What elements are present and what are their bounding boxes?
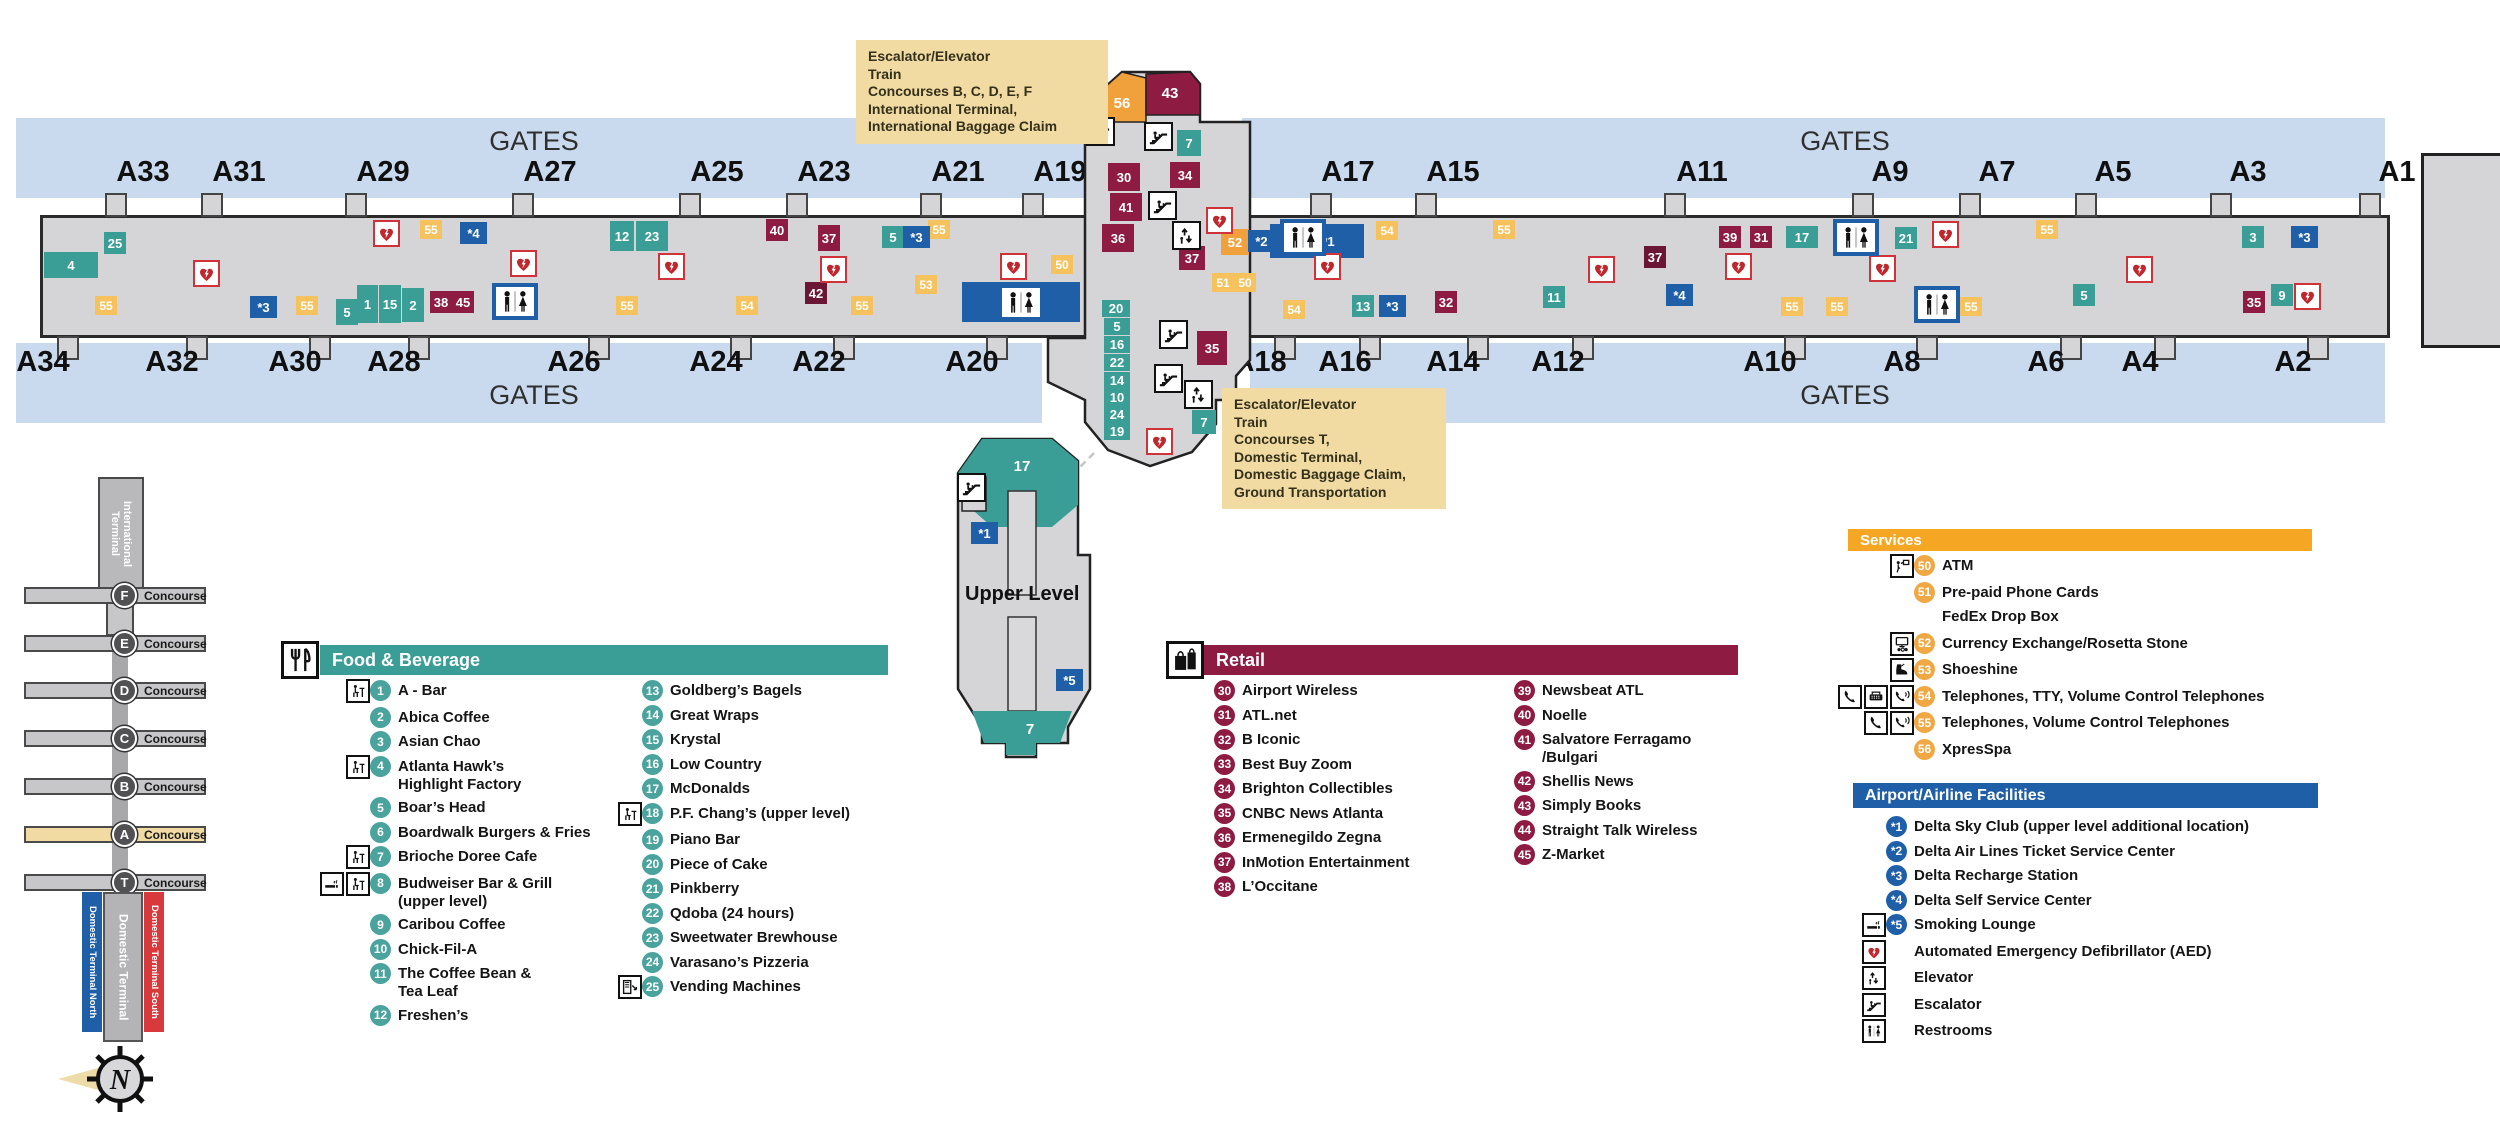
legend-badge: 11 (370, 963, 391, 984)
legend-item: 3Asian Chao (312, 733, 591, 752)
legend-label: Salvatore Ferragamo /Bulgari (1542, 731, 1691, 767)
legend-label: Smoking Lounge (1914, 916, 2036, 934)
map-marker-38: 38 (430, 291, 452, 313)
escalator-icon (1144, 122, 1173, 151)
domestic-label-south: Domestic Terminal South (144, 892, 164, 1032)
legend-label: Automated Emergency Defibrillator (AED) (1914, 943, 2212, 961)
legend-label: Asian Chao (398, 733, 481, 751)
jetway-stub (1959, 193, 1981, 217)
map-marker-star3: *3 (903, 226, 930, 248)
legend-badge: 38 (1214, 876, 1235, 897)
legend-badge-spacer (1914, 608, 1935, 629)
legend-item: 19Piano Bar (596, 831, 850, 850)
map-marker-15: 15 (379, 285, 401, 323)
legend-item-icons (1838, 714, 1914, 735)
legend-label: Brioche Doree Cafe (398, 848, 537, 866)
legend-badge: 17 (642, 778, 663, 799)
legend-badge: 33 (1214, 754, 1235, 775)
legend-badge: *2 (1886, 841, 1907, 862)
legend-label: A - Bar (398, 682, 447, 700)
legend-item: *3Delta Recharge Station (1856, 867, 2249, 886)
retail-title: Retail (1216, 650, 1265, 671)
legend-item: 50ATM (1838, 557, 2265, 578)
legend-label: Freshen’s (398, 1007, 468, 1025)
tty-icon (1864, 685, 1888, 709)
legend-badge: 53 (1914, 659, 1935, 680)
legend-item-icons (1856, 916, 1886, 937)
map-marker-7: 7 (1192, 410, 1216, 434)
map-marker-22: 22 (1104, 354, 1130, 371)
phone-icon (1838, 685, 1862, 709)
legend-badge: 43 (1514, 795, 1535, 816)
right-end-building (2421, 153, 2500, 348)
legend-item: 21Pinkberry (596, 880, 850, 899)
jetway-stub (1415, 193, 1437, 217)
aed-icon (1932, 221, 1959, 248)
map-marker-5: 5 (1104, 318, 1130, 335)
map-marker-7: 7 (1177, 130, 1201, 156)
gate-label-a30: A30 (268, 346, 321, 379)
compass-rose: N (56, 1036, 180, 1122)
compass-north-letter: N (109, 1065, 132, 1096)
jetway-stub (1310, 193, 1332, 217)
legend-item: 52Currency Exchange/Rosetta Stone (1838, 635, 2265, 656)
legend-label: Delta Recharge Station (1914, 867, 2078, 885)
concourse-bar-label: Concourse (144, 684, 207, 698)
gate-label-a8: A8 (1883, 346, 1920, 379)
map-marker-24: 24 (1104, 406, 1130, 423)
legend-label: P.F. Chang’s (upper level) (670, 805, 850, 823)
legend-label: Telephones, Volume Control Telephones (1942, 714, 2230, 732)
legend-item: FedEx Drop Box (1838, 608, 2265, 629)
gate-label-a11: A11 (1676, 156, 1728, 189)
map-marker-19: 19 (1104, 423, 1130, 440)
gate-label-a25: A25 (690, 156, 743, 189)
gate-label-a4: A4 (2121, 346, 2158, 379)
legend-item: Escalator (1856, 996, 2249, 1017)
legend-item: 12Freshen’s (312, 1007, 591, 1026)
legend-label: Shellis News (1542, 773, 1634, 791)
map-marker-55: 55 (851, 296, 873, 315)
gate-label-a22: A22 (792, 346, 845, 379)
map-marker-14: 14 (1104, 372, 1130, 389)
map-marker-54: 54 (1376, 221, 1398, 240)
restroom-icon (1833, 219, 1879, 256)
escalator-icon (1862, 993, 1886, 1017)
vending-icon (618, 975, 642, 999)
jetway-stub (679, 193, 701, 217)
jetway-stub (920, 193, 942, 217)
legend-badge: 10 (370, 939, 391, 960)
gate-label-a10: A10 (1743, 346, 1796, 379)
legend-item: 18P.F. Chang’s (upper level) (596, 805, 850, 826)
legend-item: 31ATL.net (1214, 707, 1410, 726)
legend-badge: 42 (1514, 771, 1535, 792)
legend-item: 5Boar’s Head (312, 799, 591, 818)
legend-item: 16Low Country (596, 756, 850, 775)
callout-escalator-south: Escalator/ElevatorTrainConcourses T,Dome… (1222, 388, 1446, 509)
legend-label: Piano Bar (670, 831, 740, 849)
legend-item-icons (596, 805, 642, 826)
aed-icon (1000, 253, 1027, 280)
gate-label-a34: A34 (16, 346, 69, 379)
legend-badge: 9 (370, 914, 391, 935)
jetway-stub (786, 193, 808, 217)
legend-item-icons (312, 875, 370, 896)
services-title: Services (1860, 532, 1922, 549)
gate-label-a32: A32 (145, 346, 198, 379)
map-marker-35: 35 (2243, 291, 2265, 313)
legend-item: Automated Emergency Defibrillator (AED) (1856, 943, 2249, 964)
gate-label-a12: A12 (1531, 346, 1584, 379)
legend-label: Escalator (1914, 996, 1982, 1014)
legend-label: B Iconic (1242, 731, 1300, 749)
legend-item-icons (312, 848, 370, 869)
map-marker-45: 45 (452, 291, 474, 313)
legend-label: Best Buy Zoom (1242, 756, 1352, 774)
map-marker-54: 54 (1283, 300, 1305, 319)
map-marker-55: 55 (95, 296, 117, 315)
concourse-bar-label: Concourse (144, 876, 207, 890)
aed-icon (510, 250, 537, 277)
shopping-bags-icon (1166, 641, 1204, 679)
legend-label: Shoeshine (1942, 661, 2018, 679)
legend-label: Budweiser Bar & Grill (upper level) (398, 875, 552, 911)
international-terminal-box: International Terminal (98, 477, 144, 591)
legend-badge: 40 (1514, 705, 1535, 726)
concourse-circle-b: B (112, 774, 137, 799)
legend-label: CNBC News Atlanta (1242, 805, 1383, 823)
legend-badge: 39 (1514, 680, 1535, 701)
map-marker-30: 30 (1108, 163, 1140, 191)
legend-badge: 35 (1214, 803, 1235, 824)
legend-item: 1A - Bar (312, 682, 591, 703)
callout-north-line: International Baggage Claim (868, 118, 1096, 136)
map-marker-star3: *3 (250, 296, 277, 318)
map-marker-3: 3 (2242, 226, 2264, 248)
gate-label-a17: A17 (1321, 156, 1374, 189)
map-marker-12: 12 (610, 221, 634, 251)
volphone-icon (1890, 685, 1914, 709)
aed-icon (658, 253, 685, 280)
legend-badge: 7 (370, 846, 391, 867)
map-marker-36: 36 (1102, 224, 1134, 252)
legend-label: ATM (1942, 557, 1973, 575)
legend-item: 7Brioche Doree Cafe (312, 848, 591, 869)
map-marker-32: 32 (1435, 291, 1457, 313)
legend-badge: 34 (1214, 778, 1235, 799)
gate-label-a9: A9 (1871, 156, 1908, 189)
gate-label-a28: A28 (367, 346, 420, 379)
legend-badge: 44 (1514, 820, 1535, 841)
legend-item: 4Atlanta Hawk’s Highlight Factory (312, 758, 591, 794)
domestic-box-main: Domestic Terminal (103, 892, 143, 1042)
concourse-bar-label: Concourse (144, 780, 207, 794)
jetway-stub (1852, 193, 1874, 217)
map-marker-2: 2 (402, 288, 424, 322)
concourse-bar-label: Concourse (144, 589, 207, 603)
map-marker-5: 5 (882, 226, 904, 248)
legend-item-icons (312, 682, 370, 703)
legend-item: *1Delta Sky Club (upper level additional… (1856, 818, 2249, 837)
retail-list-col2: 39Newsbeat ATL40Noelle41Salvatore Ferrag… (1514, 682, 1697, 871)
map-marker-star3: *3 (2291, 226, 2318, 248)
concourse-circle-a: A (112, 822, 137, 847)
callout-north-line: Escalator/Elevator (868, 48, 1096, 66)
legend-badge: 12 (370, 1005, 391, 1026)
legend-label: ATL.net (1242, 707, 1297, 725)
legend-label: Simply Books (1542, 797, 1641, 815)
services-list: 50ATM51Pre-paid Phone CardsFedEx Drop Bo… (1838, 557, 2265, 765)
legend-item: 8Budweiser Bar & Grill (upper level) (312, 875, 591, 911)
callout-north-line: International Terminal, (868, 101, 1096, 119)
legend-item: 40Noelle (1514, 707, 1697, 726)
escalator-icon (957, 473, 986, 502)
legend-item-icons (596, 978, 642, 999)
gates-word: GATES (1800, 126, 1890, 157)
concourse-bar-t: TConcourse (24, 874, 206, 891)
gate-label-a23: A23 (797, 156, 850, 189)
phone-icon (1864, 711, 1888, 735)
legend-label: Abica Coffee (398, 709, 490, 727)
callout-south-line: Ground Transportation (1234, 484, 1434, 502)
upper-level-label: Upper Level (965, 583, 1079, 606)
legend-badge: 23 (642, 927, 663, 948)
legend-item-icons (1856, 943, 1886, 964)
legend-item: 22Qdoba (24 hours) (596, 905, 850, 924)
gate-label-a7: A7 (1978, 156, 2015, 189)
legend-label: Newsbeat ATL (1542, 682, 1644, 700)
legend-label: Currency Exchange/Rosetta Stone (1942, 635, 2188, 653)
legend-label: McDonalds (670, 780, 750, 798)
legend-label: Chick-Fil-A (398, 941, 477, 959)
aed-icon (193, 260, 220, 287)
map-marker-34: 34 (1170, 162, 1200, 188)
legend-badge-spacer (1886, 996, 1907, 1017)
map-marker-55: 55 (1960, 297, 1982, 316)
map-marker-37: 37 (1644, 246, 1666, 268)
legend-label: Piece of Cake (670, 856, 768, 874)
legend-item: 35CNBC News Atlanta (1214, 805, 1410, 824)
gate-label-a16: A16 (1318, 346, 1371, 379)
legend-label: Restrooms (1914, 1022, 1992, 1040)
legend-badge: 8 (370, 873, 391, 894)
legend-item: 55Telephones, Volume Control Telephones (1838, 714, 2265, 735)
legend-label: Z-Market (1542, 846, 1605, 864)
legend-item: *4Delta Self Service Center (1856, 892, 2249, 911)
legend-label: Sweetwater Brewhouse (670, 929, 838, 947)
retail-header: Retail (1204, 645, 1738, 675)
bar-icon (346, 845, 370, 869)
legend-badge: 54 (1914, 686, 1935, 707)
map-marker-1: 1 (357, 285, 378, 323)
legend-label: Varasano’s Pizzeria (670, 954, 809, 972)
aed-icon (1869, 255, 1896, 282)
map-marker-13: 13 (1352, 295, 1374, 317)
map-marker-35: 35 (1197, 331, 1227, 365)
aed-icon (1206, 207, 1233, 234)
concourse-bar-d: DConcourse (24, 682, 206, 699)
legend-badge: 24 (642, 952, 663, 973)
map-marker-star4: *4 (1666, 284, 1693, 306)
map-marker-43: 43 (1152, 83, 1188, 103)
map-marker-39: 39 (1719, 226, 1741, 248)
map-marker-5: 5 (336, 299, 358, 325)
legend-item-icons (1856, 969, 1886, 990)
gate-label-a3: A3 (2229, 156, 2266, 189)
legend-label: XpresSpa (1942, 741, 2011, 759)
map-marker-star4: *4 (460, 222, 487, 244)
food-beverage-header: Food & Beverage (320, 645, 888, 675)
map-marker-55: 55 (616, 296, 638, 315)
smoking-icon (320, 872, 344, 896)
legend-item: 20Piece of Cake (596, 856, 850, 875)
legend-badge: 41 (1514, 729, 1535, 750)
legend-label: Noelle (1542, 707, 1587, 725)
aed-icon (820, 256, 847, 283)
legend-badge: 50 (1914, 555, 1935, 576)
airport-concourse-map: GATES GATES GATES GATES Upper Level Esca… (0, 0, 2500, 1122)
domestic-label-north: Domestic Terminal North (82, 892, 102, 1032)
jetway-stub (345, 193, 367, 217)
map-marker-37: 37 (818, 225, 840, 251)
gate-label-a31: A31 (212, 156, 265, 189)
legend-label: Atlanta Hawk’s Highlight Factory (398, 758, 521, 794)
escalator-icon (1159, 320, 1188, 349)
legend-item: 42Shellis News (1514, 773, 1697, 792)
legend-badge: *4 (1886, 890, 1907, 911)
callout-south-line: Concourses T, (1234, 431, 1434, 449)
legend-badge-spacer (1886, 969, 1907, 990)
legend-item: 36Ermenegildo Zegna (1214, 829, 1410, 848)
legend-item-icons (1838, 557, 1914, 578)
legend-label: Pre-paid Phone Cards (1942, 584, 2099, 602)
map-marker-16: 16 (1104, 336, 1130, 353)
concourse-circle-f: F (112, 583, 137, 608)
map-marker-51: 51 (1212, 273, 1234, 292)
restroom-icon (998, 284, 1044, 321)
map-marker-17: 17 (1002, 456, 1042, 476)
domestic-box-north: Domestic Terminal North (82, 892, 102, 1032)
concourse-bar-label: Concourse (144, 828, 207, 842)
legend-label: Delta Air Lines Ticket Service Center (1914, 843, 2175, 861)
concourse-bar-f: FConcourse (24, 587, 206, 604)
callout-south-line: Domestic Terminal, (1234, 449, 1434, 467)
legend-badge: 5 (370, 797, 391, 818)
gates-word: GATES (1800, 380, 1890, 411)
aed-icon (2294, 283, 2321, 310)
legend-item: 13Goldberg’s Bagels (596, 682, 850, 701)
legend-item: 38L’Occitane (1214, 878, 1410, 897)
food-beverage-title: Food & Beverage (332, 650, 480, 671)
map-marker-17: 17 (1786, 226, 1818, 248)
legend-item: 37InMotion Entertainment (1214, 854, 1410, 873)
legend-badge: 31 (1214, 705, 1235, 726)
aed-icon (373, 220, 400, 247)
elevator-icon (1862, 966, 1886, 990)
legend-label: Airport Wireless (1242, 682, 1358, 700)
aed-icon (1146, 428, 1173, 455)
legend-item-icons (1838, 688, 1914, 709)
legend-label: Delta Sky Club (upper level additional l… (1914, 818, 2249, 836)
map-marker-55: 55 (1493, 220, 1515, 239)
legend-item: 9Caribou Coffee (312, 916, 591, 935)
aed-icon (1862, 940, 1886, 964)
facilities-header: Airport/Airline Facilities (1853, 783, 2318, 808)
legend-item: 32B Iconic (1214, 731, 1410, 750)
concourse-bar-c: CConcourse (24, 730, 206, 747)
legend-label: Pinkberry (670, 880, 739, 898)
legend-label: FedEx Drop Box (1942, 608, 2059, 626)
legend-badge: 36 (1214, 827, 1235, 848)
map-marker-53: 53 (915, 275, 937, 294)
concourse-circle-d: D (112, 678, 137, 703)
legend-label: Goldberg’s Bagels (670, 682, 802, 700)
legend-item: Elevator (1856, 969, 2249, 990)
legend-badge: *5 (1886, 914, 1907, 935)
callout-south-line: Domestic Baggage Claim, (1234, 466, 1434, 484)
legend-badge: 37 (1214, 852, 1235, 873)
domestic-box-south: Domestic Terminal South (144, 892, 164, 1032)
concourse-bar-label: Concourse (144, 637, 207, 651)
concourse-bar-a: AConcourse (24, 826, 206, 843)
legend-badge: 19 (642, 829, 663, 850)
map-marker-55: 55 (1781, 297, 1803, 316)
legend-badge: 4 (370, 756, 391, 777)
legend-item: 23Sweetwater Brewhouse (596, 929, 850, 948)
legend-badge: 25 (642, 976, 663, 997)
legend-item: 6Boardwalk Burgers & Fries (312, 824, 591, 843)
map-marker-31: 31 (1750, 226, 1772, 248)
jetway-stub (105, 193, 127, 217)
legend-item: 17McDonalds (596, 780, 850, 799)
legend-badge: *1 (1886, 816, 1907, 837)
legend-badge: 56 (1914, 739, 1935, 760)
legend-badge: 1 (370, 680, 391, 701)
legend-item-icons (1838, 635, 1914, 656)
legend-label: InMotion Entertainment (1242, 854, 1410, 872)
map-marker-25: 25 (104, 232, 126, 254)
bar-icon (618, 802, 642, 826)
gates-word: GATES (489, 126, 579, 157)
map-marker-42: 42 (805, 282, 827, 304)
legend-badge: 32 (1214, 729, 1235, 750)
legend-label: Ermenegildo Zegna (1242, 829, 1381, 847)
legend-badge: 45 (1514, 844, 1535, 865)
restroom-icon (1914, 286, 1960, 323)
gate-label-a14: A14 (1426, 346, 1479, 379)
legend-item: *2Delta Air Lines Ticket Service Center (1856, 843, 2249, 862)
map-marker-50: 50 (1051, 255, 1073, 274)
gate-label-a21: A21 (931, 156, 984, 189)
legend-label: L’Occitane (1242, 878, 1318, 896)
map-marker-star1: *1 (971, 522, 998, 544)
bar-icon (346, 755, 370, 779)
legend-badge-spacer (1886, 1022, 1907, 1043)
legend-label: Elevator (1914, 969, 1973, 987)
concourse-circle-c: C (112, 726, 137, 751)
legend-item-icons (1838, 661, 1914, 682)
gate-label-a15: A15 (1426, 156, 1479, 189)
map-marker-11: 11 (1543, 286, 1565, 308)
legend-item: 11The Coffee Bean & Tea Leaf (312, 965, 591, 1001)
elevator-icon (1172, 221, 1201, 250)
concourse-bar-label: Concourse (144, 732, 207, 746)
volphone-icon (1890, 711, 1914, 735)
gates-word: GATES (489, 380, 579, 411)
concourse-bar-b: BConcourse (24, 778, 206, 795)
legend-badge-spacer (1886, 943, 1907, 964)
